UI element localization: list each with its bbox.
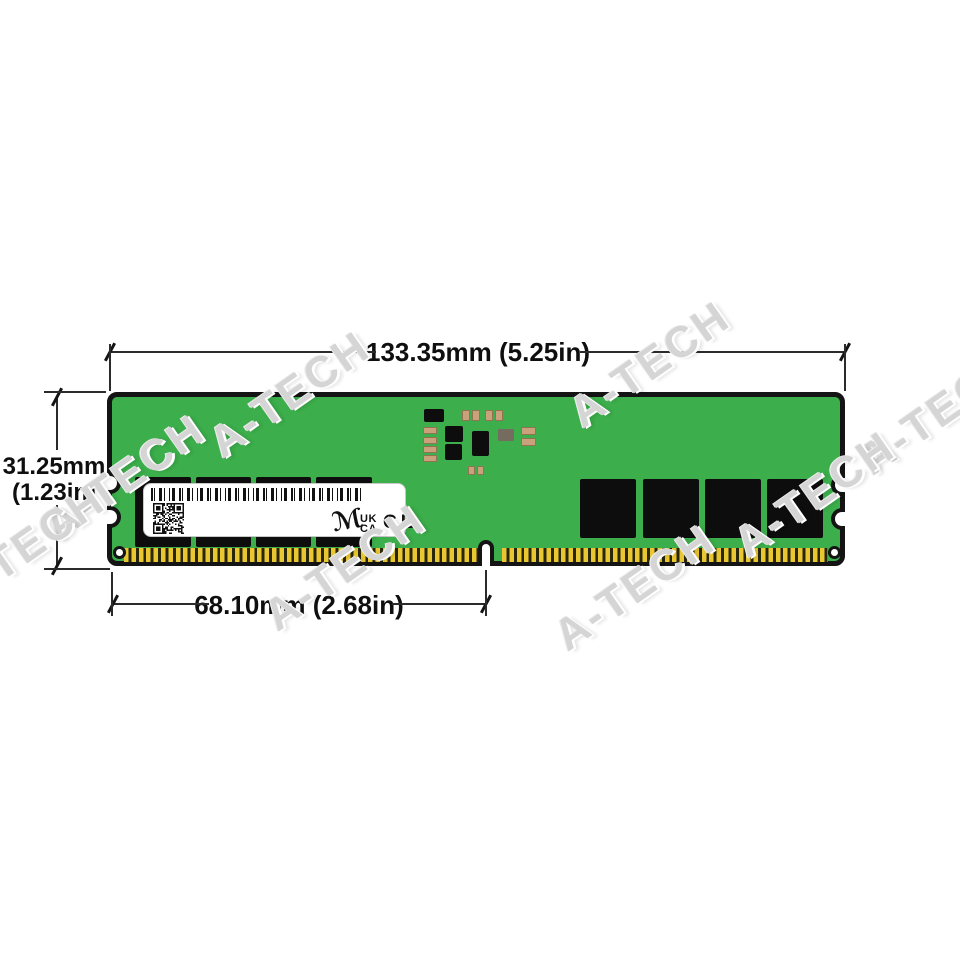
width-dimension-label: 133.35mm (5.25in): [366, 337, 590, 368]
smd-capacitor: [423, 427, 437, 434]
smd-ic: [445, 426, 463, 442]
edge-notch: [831, 508, 845, 530]
product-label: ℳ UK CA CE: [143, 483, 406, 537]
extension-line: [844, 344, 846, 391]
dram-chip: [580, 479, 636, 538]
dram-chip: [767, 479, 823, 538]
mounting-hole-right: [828, 546, 841, 559]
qr-code: [153, 503, 184, 534]
ram-module-pcb: ℳ UK CA CE: [107, 392, 845, 566]
key-notch: [478, 540, 494, 566]
smd-capacitor: [521, 438, 536, 446]
extension-line: [109, 344, 111, 391]
ukca-mark: UK CA: [360, 514, 377, 534]
extension-line: [111, 572, 113, 616]
pin-section-dimension-label: 68.10mm (2.68in): [194, 590, 404, 621]
smd-ic: [445, 444, 462, 460]
smd-capacitor: [495, 410, 503, 421]
extension-line: [44, 391, 106, 393]
smd-capacitor: [477, 466, 484, 475]
smd-capacitor: [485, 410, 493, 421]
edge-notch: [831, 474, 845, 496]
smd-capacitor: [472, 410, 480, 421]
mounting-hole-left: [113, 546, 126, 559]
dimension-line: [392, 603, 486, 605]
smd-capacitor: [423, 455, 437, 462]
pmic-chip: [472, 431, 489, 456]
barcode: [151, 488, 361, 501]
smd-capacitor: [462, 410, 470, 421]
edge-notch: [107, 506, 121, 528]
gold-pins-right: [502, 548, 828, 562]
ce-mark: CE: [383, 512, 417, 534]
smd-capacitor: [521, 427, 536, 435]
smd-ic: [424, 409, 444, 422]
dimension-line: [113, 603, 209, 605]
watermark-text: A-TECH: [850, 339, 960, 486]
smd-capacitor: [468, 466, 475, 475]
extension-line: [485, 570, 487, 616]
dimension-line: [110, 351, 376, 353]
dram-chip: [643, 479, 699, 538]
height-dimension-label-line1: 31.25mm: [0, 453, 108, 481]
dimension-line: [56, 396, 58, 450]
dimension-line: [56, 505, 58, 567]
smd-inductor: [498, 429, 514, 441]
smd-capacitor: [423, 437, 437, 444]
height-dimension-label-line2: (1.23in): [0, 479, 108, 507]
extension-line: [44, 568, 110, 570]
dimension-line: [580, 351, 845, 353]
product-diagram: ℳ UK CA CE 133.35mm (5.25in) 31.25mm (1.…: [0, 0, 960, 960]
gold-pins-left: [124, 548, 478, 562]
smd-capacitor: [423, 446, 437, 453]
ukca-mark-line2: CA: [360, 524, 377, 534]
edge-notch: [107, 472, 121, 494]
dram-chip: [705, 479, 761, 538]
